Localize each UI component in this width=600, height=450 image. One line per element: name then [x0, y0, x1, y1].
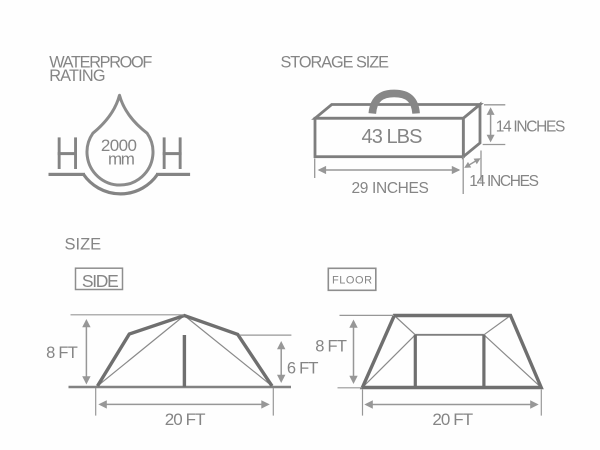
svg-text:14 INCHES: 14 INCHES	[469, 173, 538, 190]
svg-text:29 INCHES: 29 INCHES	[352, 180, 429, 197]
svg-text:8 FT: 8 FT	[315, 338, 347, 356]
svg-text:14 INCHES: 14 INCHES	[496, 119, 565, 136]
svg-text:SIDE: SIDE	[82, 271, 118, 291]
svg-text:20 FT: 20 FT	[165, 410, 205, 429]
svg-text:43 LBS: 43 LBS	[362, 126, 423, 148]
svg-text:20 FT: 20 FT	[432, 410, 472, 429]
svg-text:6 FT: 6 FT	[287, 360, 319, 378]
svg-text:8 FT: 8 FT	[46, 344, 78, 362]
svg-text:RATING: RATING	[49, 67, 105, 85]
svg-text:SIZE: SIZE	[65, 236, 102, 254]
svg-text:STORAGE SIZE: STORAGE SIZE	[281, 53, 390, 71]
svg-text:mm: mm	[108, 150, 135, 169]
svg-text:FLOOR: FLOOR	[332, 275, 373, 287]
